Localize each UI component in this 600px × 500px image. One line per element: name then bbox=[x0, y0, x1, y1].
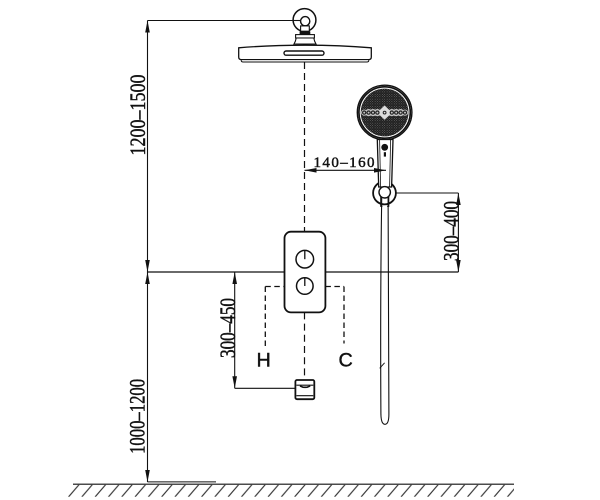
svg-text:H: H bbox=[256, 349, 270, 371]
svg-text:140–160: 140–160 bbox=[314, 155, 375, 171]
svg-text:1200–1500: 1200–1500 bbox=[125, 75, 150, 156]
svg-text:C: C bbox=[338, 349, 352, 371]
svg-text:1000–1200: 1000–1200 bbox=[124, 379, 149, 454]
svg-text:300–450: 300–450 bbox=[215, 298, 240, 358]
svg-text:300–400: 300–400 bbox=[438, 201, 463, 261]
